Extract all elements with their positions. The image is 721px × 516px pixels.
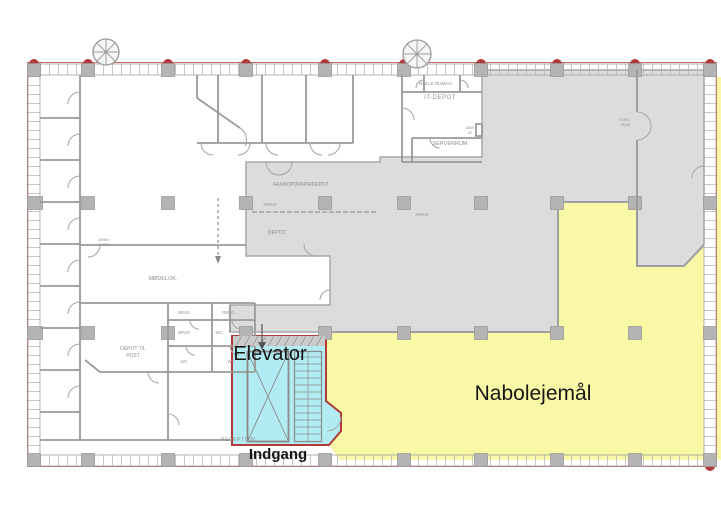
room-label-rulle-rum: RULLE RUM/VC xyxy=(419,81,453,86)
room-label-depot: DEPOT xyxy=(268,230,288,236)
facade-band-bottom xyxy=(28,455,716,466)
room-label-brus-2: BRUS xyxy=(178,330,190,335)
floor-plan-page: RULLE RUM/VC IT-DEPOT SERVERRUM 380V 42 … xyxy=(0,0,721,516)
room-label-tekn: TEKN. xyxy=(619,118,630,122)
room-label-depot-til-post: DEPOT TIL xyxy=(120,346,146,352)
room-label-reng: RENG. xyxy=(222,310,235,315)
facade-band-left xyxy=(28,64,40,466)
floor-plan-drawing: RULLE RUM/VC IT-DEPOT SERVERRUM 380V 42 … xyxy=(0,0,721,516)
partition-arrowhead-icon xyxy=(215,256,221,264)
room-label-wc: WC xyxy=(216,330,223,335)
room-label-arkiv-bord-2: BORD xyxy=(99,243,110,247)
room-label-wc-2: WC xyxy=(181,359,188,364)
room-label-380v-2: 42 xyxy=(468,131,472,135)
room-label-arkiv-bord: ARKIV xyxy=(98,238,110,242)
room-label-380v: 380V xyxy=(466,126,475,130)
room-label-moedelok: MØDELOK. xyxy=(148,276,178,282)
room-label-serverrum: SERVERRUM xyxy=(432,141,467,147)
room-label-fax-kopi: FAX/KOPI/PAPIRDEPOT xyxy=(273,182,329,188)
facade-band-top xyxy=(28,64,716,75)
room-label-depot-til-post-2: POST xyxy=(126,353,140,359)
room-label-it-depot: IT-DEPOT xyxy=(424,95,456,101)
elevator-label: Elevator xyxy=(233,343,307,365)
room-label-brus: BRUS xyxy=(178,310,190,315)
indgang-label: Indgang xyxy=(249,446,307,463)
room-label-reception: RECEPTION xyxy=(221,437,256,443)
spiral-staircase-icon xyxy=(403,40,431,68)
room-label-arkiv-2: ARKIV xyxy=(415,212,429,217)
room-label-tekn-2: RUM xyxy=(621,123,630,127)
room-label-arkiv: ARKIV xyxy=(263,202,277,207)
facade-band-right xyxy=(704,64,716,466)
nabolejemaal-label: Nabolejemål xyxy=(475,382,592,405)
spiral-staircase-icon xyxy=(93,39,119,65)
